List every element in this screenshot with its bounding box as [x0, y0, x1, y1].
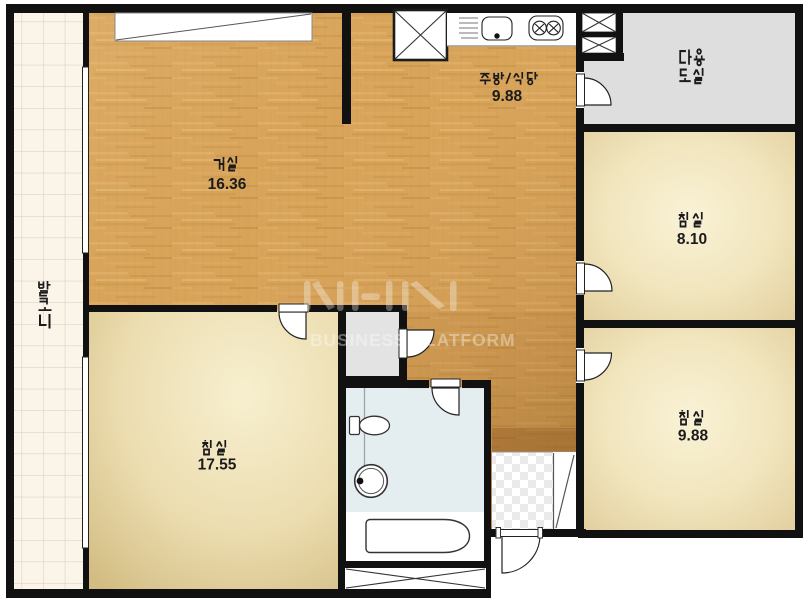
svg-text:BUSINESS PLATFORM: BUSINESS PLATFORM: [310, 330, 516, 350]
svg-text:8.10: 8.10: [677, 231, 707, 248]
svg-text:9.88: 9.88: [492, 88, 523, 105]
svg-text:16.36: 16.36: [208, 176, 247, 193]
svg-text:17.55: 17.55: [198, 457, 237, 474]
svg-text:9.88: 9.88: [678, 428, 709, 445]
